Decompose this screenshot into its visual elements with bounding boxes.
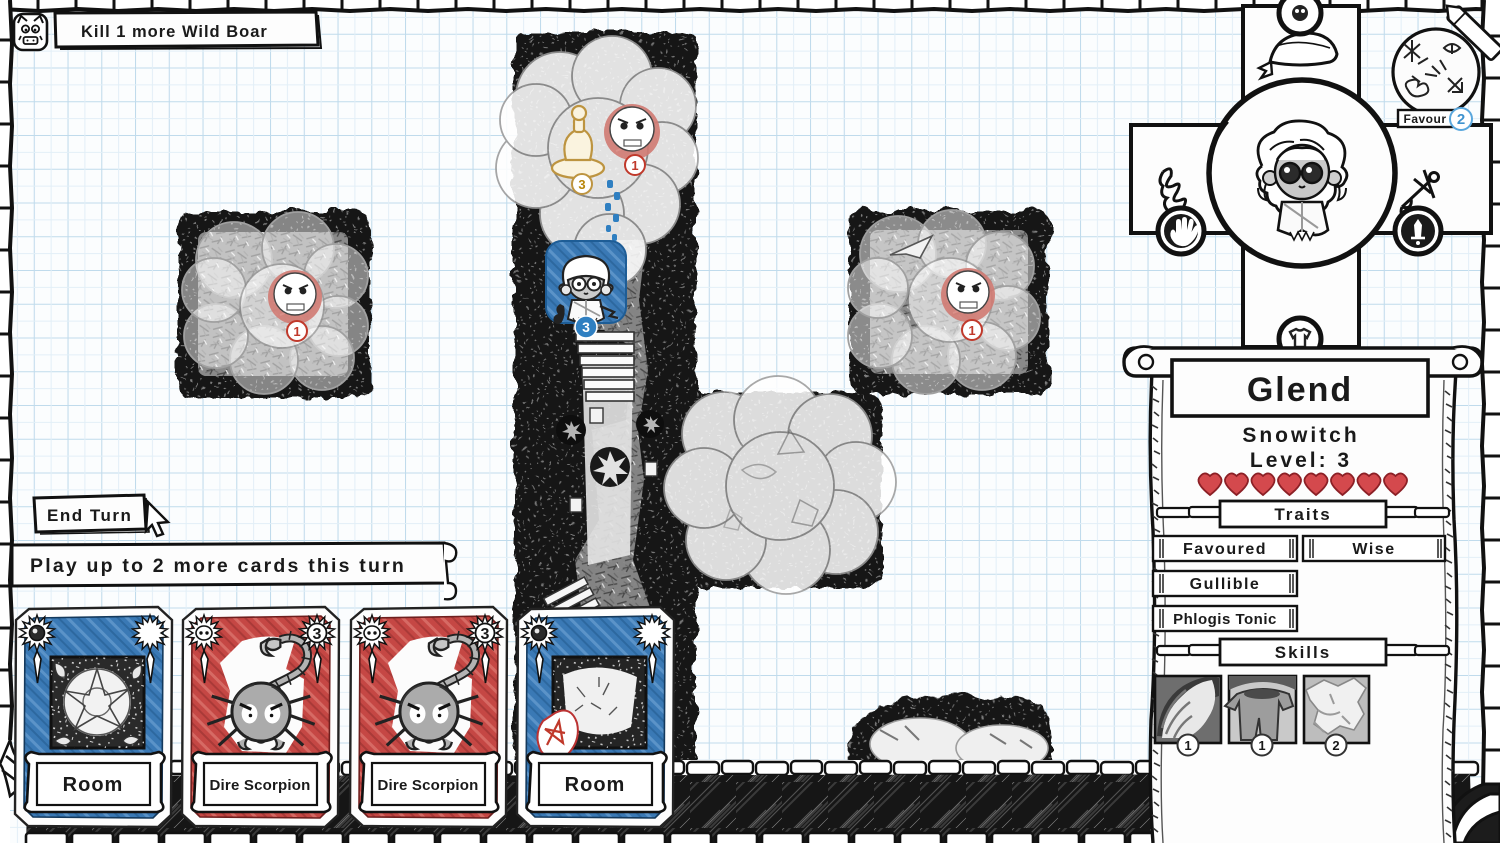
svg-text:3: 3 [313,626,322,643]
svg-text:1: 1 [1258,738,1265,753]
svg-text:Wise: Wise [1352,541,1395,558]
svg-text:Glend: Glend [1247,371,1353,409]
svg-text:1: 1 [1184,738,1191,753]
svg-text:Favoured: Favoured [1183,541,1267,558]
svg-text:Traits: Traits [1274,505,1331,524]
svg-text:2: 2 [1457,111,1465,128]
svg-text:Dire Scorpion: Dire Scorpion [378,777,479,794]
svg-text:Snowitch: Snowitch [1242,424,1359,447]
svg-text:Phlogis Tonic: Phlogis Tonic [1173,611,1277,628]
svg-text:3: 3 [582,319,590,335]
svg-text:Room: Room [565,774,626,796]
svg-text:1: 1 [968,323,975,338]
svg-text:2: 2 [1332,738,1339,753]
svg-text:3: 3 [578,177,585,192]
svg-text:Gullible: Gullible [1190,576,1261,593]
svg-text:Kill 1 more Wild Boar: Kill 1 more Wild Boar [81,23,268,41]
svg-text:Dire Scorpion: Dire Scorpion [210,777,311,794]
svg-text:3: 3 [481,626,490,643]
svg-text:1: 1 [631,158,638,173]
svg-text:End Turn: End Turn [47,506,132,525]
svg-text:Room: Room [63,774,124,796]
svg-text:Level: 3: Level: 3 [1250,449,1352,472]
svg-text:Skills: Skills [1275,643,1331,662]
svg-text:Play up to 2 more cards this t: Play up to 2 more cards this turn [30,555,406,577]
svg-text:1: 1 [293,324,300,339]
svg-text:Favour: Favour [1403,112,1446,126]
